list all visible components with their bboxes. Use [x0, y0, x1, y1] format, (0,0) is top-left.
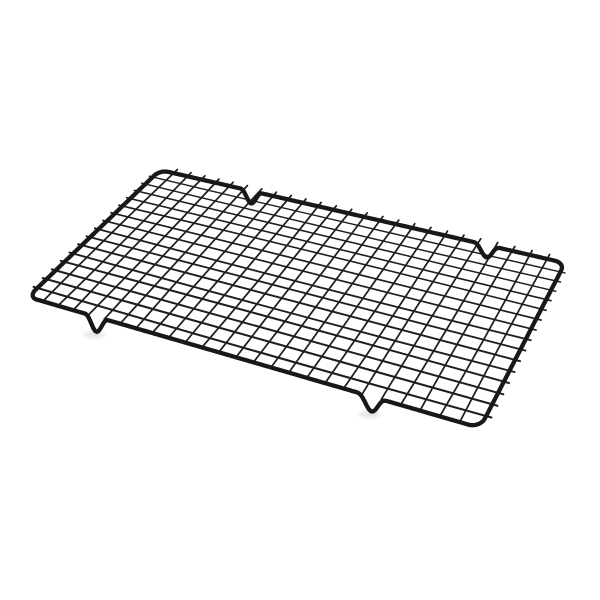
grid-wire-column [152, 192, 276, 333]
grid-wire-column [58, 173, 191, 306]
product-photo [0, 0, 600, 600]
cooling-rack-image [0, 0, 600, 600]
grid-wire-column [440, 251, 532, 417]
grid-wire-column [169, 196, 292, 338]
grid-wire-column [185, 199, 306, 343]
grid-wire-column [89, 179, 219, 315]
grid-wire-column [73, 176, 205, 310]
grid-wire-column [43, 170, 177, 302]
grid-wire-row [34, 287, 492, 418]
